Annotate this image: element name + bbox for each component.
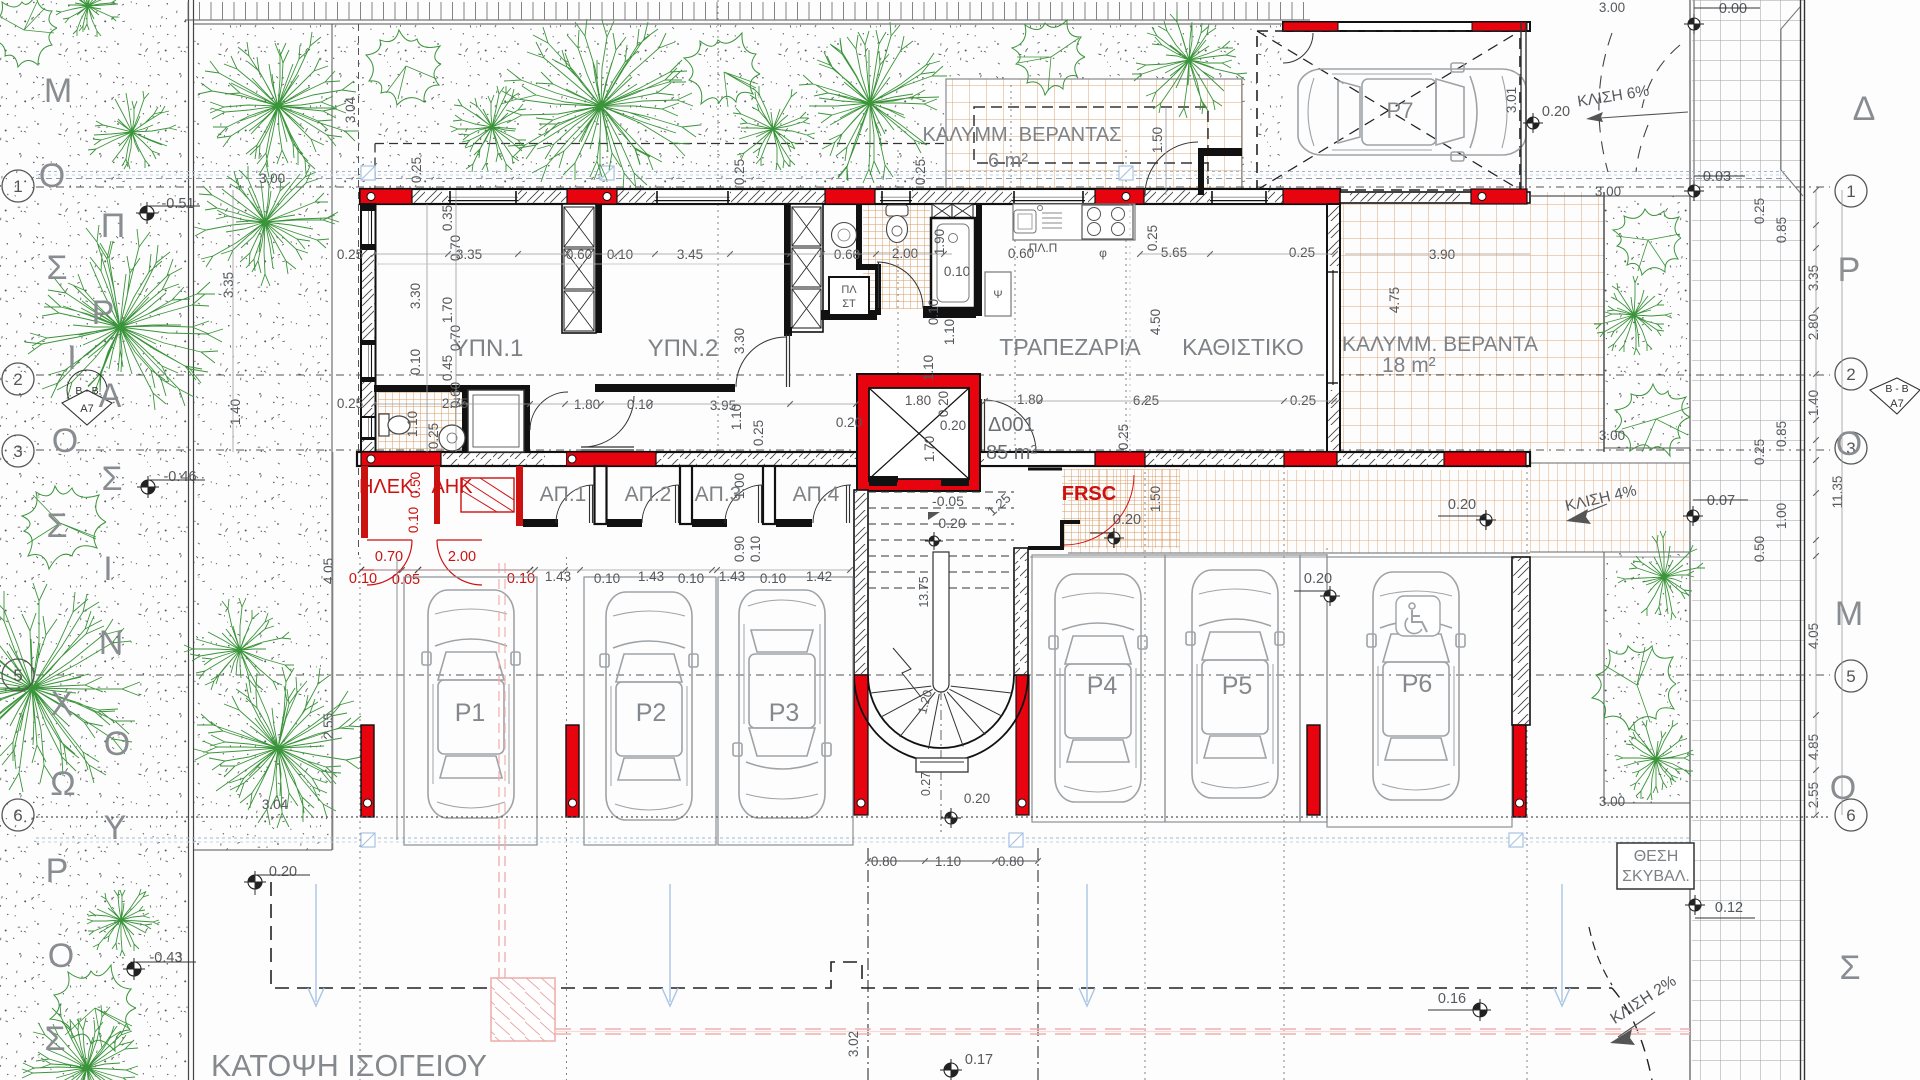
- svg-text:3.90: 3.90: [1429, 247, 1455, 262]
- svg-text:Σ: Σ: [101, 460, 122, 498]
- svg-text:0.45: 0.45: [440, 355, 455, 381]
- svg-text:2.55: 2.55: [1806, 782, 1821, 808]
- svg-text:Μ: Μ: [44, 72, 72, 110]
- svg-text:ΑΠ.1: ΑΠ.1: [540, 483, 587, 506]
- svg-text:ΚΑΘΙΣΤΙΚΟ: ΚΑΘΙΣΤΙΚΟ: [1182, 334, 1304, 360]
- svg-text:Μ: Μ: [1835, 595, 1863, 633]
- svg-text:Σ: Σ: [1839, 949, 1860, 987]
- svg-text:P7: P7: [1387, 98, 1414, 123]
- svg-text:P4: P4: [1087, 672, 1118, 700]
- svg-text:0.25: 0.25: [1116, 424, 1131, 450]
- svg-text:13.75: 13.75: [917, 576, 931, 607]
- svg-text:Ι: Ι: [103, 550, 112, 588]
- svg-text:Σ: Σ: [46, 507, 67, 545]
- svg-text:Ρ: Ρ: [92, 294, 115, 332]
- svg-text:1.10: 1.10: [405, 411, 420, 437]
- svg-text:Ν: Ν: [99, 624, 124, 662]
- svg-text:-0.46: -0.46: [163, 469, 196, 485]
- svg-text:0.25: 0.25: [1752, 439, 1767, 465]
- svg-text:0.10: 0.10: [944, 264, 970, 279]
- svg-text:Ο: Ο: [39, 157, 65, 195]
- svg-text:1.50: 1.50: [1148, 486, 1163, 512]
- svg-text:0.10: 0.10: [607, 247, 633, 262]
- svg-text:0.80: 0.80: [871, 854, 897, 869]
- svg-text:Ω: Ω: [50, 765, 75, 803]
- svg-text:0.20: 0.20: [269, 864, 297, 880]
- svg-text:Χ: Χ: [51, 685, 74, 723]
- svg-text:Ρ: Ρ: [1838, 251, 1861, 289]
- svg-text:4.50: 4.50: [1148, 309, 1163, 335]
- svg-text:1.43: 1.43: [545, 569, 571, 584]
- svg-text:0.00: 0.00: [1719, 1, 1747, 17]
- svg-text:ΥΠΝ.1: ΥΠΝ.1: [453, 335, 524, 362]
- svg-text:ΚΑΛΥΜΜ. ΒΕΡΑΝΤΑ: ΚΑΛΥΜΜ. ΒΕΡΑΝΤΑ: [1342, 333, 1538, 356]
- svg-text:3.00: 3.00: [1599, 428, 1625, 443]
- svg-text:ΠΛ: ΠΛ: [841, 284, 857, 296]
- svg-text:0.20: 0.20: [938, 515, 965, 531]
- svg-text:P6: P6: [1402, 670, 1433, 698]
- svg-text:0.10: 0.10: [406, 507, 421, 533]
- svg-text:0.10: 0.10: [349, 571, 377, 587]
- svg-text:0.25: 0.25: [913, 159, 928, 185]
- svg-text:P3: P3: [769, 699, 800, 727]
- svg-text:1.70: 1.70: [440, 297, 455, 323]
- svg-text:-0.05: -0.05: [932, 493, 964, 509]
- svg-text:0.20: 0.20: [940, 418, 966, 433]
- svg-text:Ο: Ο: [52, 422, 78, 460]
- svg-text:ΑΠ.2: ΑΠ.2: [625, 483, 672, 506]
- svg-text:0.20: 0.20: [1304, 571, 1332, 587]
- svg-text:0.10: 0.10: [760, 571, 786, 586]
- svg-text:ΘΕΣΗ: ΘΕΣΗ: [1634, 848, 1679, 865]
- svg-text:2.00: 2.00: [448, 549, 476, 565]
- svg-text:6 m²: 6 m²: [988, 150, 1028, 172]
- svg-text:2.80: 2.80: [1806, 314, 1821, 340]
- svg-text:0.07: 0.07: [1707, 493, 1735, 509]
- svg-text:ΣΤ: ΣΤ: [842, 298, 856, 310]
- svg-text:1.40: 1.40: [1806, 390, 1821, 416]
- svg-text:3.00: 3.00: [259, 171, 285, 186]
- svg-text:0.10: 0.10: [408, 349, 423, 375]
- svg-text:3.30: 3.30: [408, 283, 423, 309]
- svg-text:85 m²: 85 m²: [986, 442, 1037, 464]
- svg-text:1: 1: [1846, 182, 1855, 201]
- svg-text:3: 3: [13, 442, 22, 461]
- svg-text:3.35: 3.35: [1806, 265, 1821, 291]
- svg-text:Ο: Ο: [104, 725, 130, 763]
- svg-text:0.20: 0.20: [836, 415, 862, 430]
- svg-text:0.25: 0.25: [337, 396, 363, 411]
- svg-text:0.35: 0.35: [440, 205, 455, 231]
- svg-text:2.55: 2.55: [321, 713, 336, 739]
- svg-text:ΥΠΝ.2: ΥΠΝ.2: [648, 335, 719, 362]
- svg-text:0.25: 0.25: [732, 159, 747, 185]
- svg-text:6: 6: [13, 806, 22, 825]
- svg-text:1.90: 1.90: [932, 229, 947, 255]
- svg-text:4.05: 4.05: [321, 558, 336, 584]
- svg-text:0.20: 0.20: [964, 791, 990, 806]
- svg-text:1.40: 1.40: [228, 399, 243, 425]
- svg-text:0.70: 0.70: [375, 549, 403, 565]
- svg-text:5.65: 5.65: [1161, 245, 1187, 260]
- svg-text:0.25: 0.25: [409, 157, 424, 183]
- svg-text:3.00: 3.00: [1595, 184, 1621, 199]
- svg-text:P5: P5: [1222, 672, 1253, 700]
- svg-text:Δ: Δ: [1853, 90, 1876, 128]
- svg-text:3.00: 3.00: [1599, 0, 1625, 15]
- svg-text:0.25: 0.25: [1289, 245, 1315, 260]
- svg-text:ΑΠ.4: ΑΠ.4: [793, 483, 840, 506]
- svg-text:0.20: 0.20: [1448, 497, 1476, 513]
- svg-text:0.10: 0.10: [507, 571, 535, 587]
- svg-text:ΚΑΛΥΜΜ. ΒΕΡΑΝΤΑΣ: ΚΑΛΥΜΜ. ΒΕΡΑΝΤΑΣ: [922, 124, 1121, 146]
- svg-text:3.02: 3.02: [846, 1031, 861, 1057]
- svg-text:Υ: Υ: [104, 809, 127, 847]
- svg-text:1.00: 1.00: [732, 473, 747, 499]
- svg-text:1.43: 1.43: [719, 569, 745, 584]
- svg-text:1.10: 1.10: [942, 319, 957, 345]
- svg-text:1.10: 1.10: [921, 355, 936, 381]
- svg-text:1.80: 1.80: [1017, 392, 1043, 407]
- svg-text:Ρ: Ρ: [46, 852, 69, 890]
- svg-text:4.85: 4.85: [1806, 734, 1821, 760]
- svg-text:0.05: 0.05: [392, 572, 420, 588]
- svg-text:0.25: 0.25: [1145, 225, 1160, 251]
- svg-text:0.70: 0.70: [448, 235, 463, 261]
- svg-text:0.60: 0.60: [1008, 246, 1034, 261]
- svg-text:ΚΑΤΟΨΗ ΙΣΟΓΕΙΟΥ: ΚΑΤΟΨΗ ΙΣΟΓΕΙΟΥ: [211, 1049, 487, 1080]
- svg-text:Ο: Ο: [48, 937, 74, 975]
- svg-text:0.12: 0.12: [1715, 900, 1743, 916]
- svg-text:0.10: 0.10: [594, 571, 620, 586]
- svg-text:Ψ: Ψ: [993, 289, 1002, 301]
- svg-text:3.01: 3.01: [1504, 87, 1519, 113]
- svg-text:1.10: 1.10: [935, 854, 961, 869]
- svg-text:1.42: 1.42: [806, 569, 832, 584]
- svg-text:ΣΚΥΒΑΛ.: ΣΚΥΒΑΛ.: [1622, 868, 1690, 885]
- svg-text:A7: A7: [1890, 398, 1903, 410]
- svg-text:2: 2: [13, 370, 22, 389]
- svg-text:Π: Π: [101, 207, 126, 245]
- svg-text:0.10: 0.10: [678, 571, 704, 586]
- svg-text:Ι: Ι: [67, 339, 76, 377]
- svg-text:0.85: 0.85: [1774, 421, 1789, 447]
- svg-text:-0.43: -0.43: [149, 950, 182, 966]
- svg-text:Σ: Σ: [46, 249, 67, 287]
- svg-text:0.20: 0.20: [936, 391, 951, 417]
- svg-text:11.35: 11.35: [1830, 476, 1845, 509]
- svg-text:0.25: 0.25: [1752, 198, 1767, 224]
- svg-text:0.03: 0.03: [1703, 169, 1731, 185]
- svg-text:3.04: 3.04: [343, 96, 358, 123]
- svg-text:1.43: 1.43: [638, 569, 664, 584]
- svg-text:FRSC: FRSC: [1062, 483, 1116, 505]
- svg-text:0.25: 0.25: [751, 420, 766, 446]
- svg-text:0.10: 0.10: [748, 536, 763, 562]
- svg-text:1.00: 1.00: [1774, 503, 1789, 529]
- svg-text:3.04: 3.04: [262, 797, 289, 812]
- svg-text:3.00: 3.00: [1599, 794, 1625, 809]
- svg-text:0.25: 0.25: [1290, 393, 1316, 408]
- svg-text:0.16: 0.16: [1438, 991, 1466, 1007]
- svg-text:18 m²: 18 m²: [1382, 354, 1436, 377]
- svg-text:0.27: 0.27: [919, 772, 933, 796]
- svg-text:P1: P1: [455, 699, 486, 727]
- svg-text:B - B: B - B: [1885, 383, 1908, 395]
- svg-text:3.35: 3.35: [221, 272, 236, 298]
- svg-text:1: 1: [13, 177, 22, 196]
- svg-text:1.80: 1.80: [574, 397, 600, 412]
- svg-text:3.30: 3.30: [732, 328, 747, 354]
- svg-text:A7: A7: [80, 403, 93, 415]
- svg-text:Δ001: Δ001: [988, 414, 1035, 436]
- svg-text:0.50: 0.50: [408, 472, 423, 498]
- svg-text:0.80: 0.80: [998, 854, 1024, 869]
- svg-text:B - B: B - B: [75, 385, 98, 397]
- svg-text:5: 5: [13, 666, 22, 685]
- svg-text:0.50: 0.50: [1752, 536, 1767, 562]
- svg-text:4.75: 4.75: [1387, 287, 1402, 313]
- svg-text:0.25: 0.25: [337, 247, 363, 262]
- svg-text:2: 2: [1846, 365, 1855, 384]
- svg-text:Σ: Σ: [44, 1020, 65, 1058]
- svg-text:0.20: 0.20: [1113, 512, 1141, 528]
- svg-text:ΑΗΚ: ΑΗΚ: [431, 476, 473, 498]
- svg-text:0.17: 0.17: [965, 1052, 993, 1068]
- svg-text:0.20: 0.20: [1542, 104, 1570, 120]
- svg-text:1.50: 1.50: [1150, 127, 1165, 153]
- svg-text:3.45: 3.45: [677, 247, 703, 262]
- svg-text:0.90: 0.90: [732, 536, 747, 562]
- svg-text:0.10: 0.10: [926, 299, 941, 325]
- svg-text:1.80: 1.80: [905, 393, 931, 408]
- svg-text:0.85: 0.85: [1774, 217, 1789, 243]
- svg-text:1.70: 1.70: [922, 436, 937, 462]
- svg-text:6: 6: [1846, 806, 1855, 825]
- svg-text:φ: φ: [1099, 246, 1107, 260]
- svg-text:-0.51: -0.51: [161, 196, 194, 212]
- svg-text:4.05: 4.05: [1806, 623, 1821, 649]
- svg-text:P2: P2: [636, 699, 667, 727]
- svg-text:0.70: 0.70: [448, 325, 463, 351]
- svg-text:5: 5: [1846, 667, 1855, 686]
- svg-text:2.00: 2.00: [892, 246, 918, 261]
- svg-text:Α: Α: [99, 377, 122, 415]
- svg-text:Ο: Ο: [1836, 425, 1862, 463]
- svg-text:ΤΡΑΠΕΖΑΡΙΑ: ΤΡΑΠΕΖΑΡΙΑ: [999, 334, 1141, 360]
- svg-text:1.10: 1.10: [729, 404, 744, 430]
- svg-text:0.60: 0.60: [566, 247, 592, 262]
- svg-text:0.25: 0.25: [426, 423, 441, 449]
- svg-text:Ο: Ο: [1830, 769, 1856, 807]
